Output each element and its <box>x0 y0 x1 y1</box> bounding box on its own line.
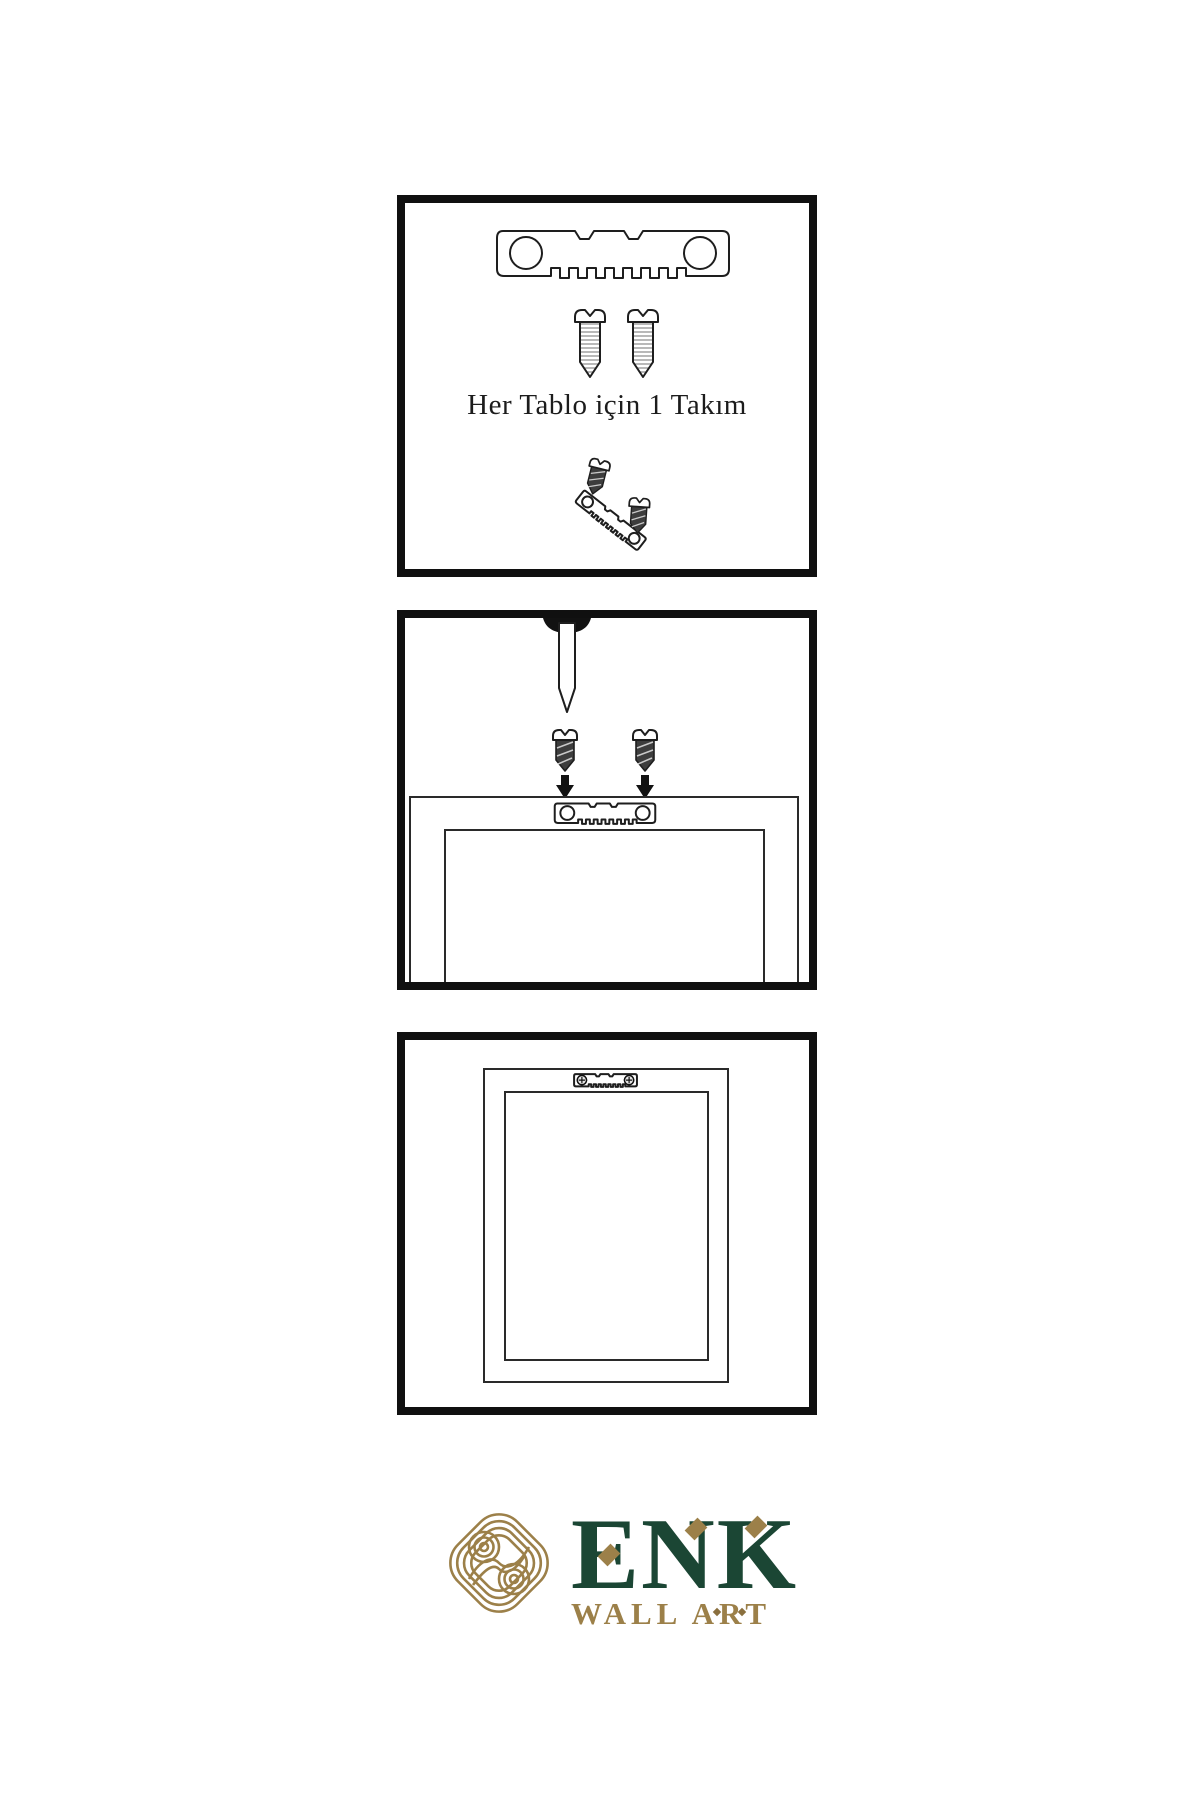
down-arrow-icon <box>556 775 574 799</box>
mounting-diagram <box>405 618 809 982</box>
brand-name: ENK <box>571 1504 798 1606</box>
panel-mount-hardware <box>397 610 817 990</box>
down-arrow-icon <box>636 775 654 799</box>
screw-icon <box>628 310 658 377</box>
frame-back-inner <box>505 1092 708 1360</box>
brand-logo: ENK WALL ART <box>437 1490 798 1632</box>
screw-icon <box>575 310 605 377</box>
screw-hanger-assembly-icon <box>575 458 650 551</box>
hardware-kit-diagram <box>405 203 809 569</box>
screw-icon <box>583 458 611 497</box>
panel-caption: Her Tablo için 1 Takım <box>405 389 809 422</box>
brand-tagline: WALL ART <box>571 1596 798 1632</box>
screw-icon <box>553 730 577 771</box>
nail-icon <box>559 623 575 712</box>
brand-text: ENK WALL ART <box>571 1504 798 1632</box>
hung-frame-diagram <box>405 1040 809 1407</box>
panel-hang-frame <box>397 1032 817 1415</box>
instruction-sheet: Her Tablo için 1 Takım <box>0 0 1200 1800</box>
sawtooth-hanger-icon <box>497 231 729 278</box>
frame-back-inner <box>445 830 764 982</box>
brand-knot-icon <box>437 1497 561 1631</box>
screw-icon <box>633 730 657 771</box>
panel-hardware-kit: Her Tablo için 1 Takım <box>397 195 817 577</box>
sawtooth-hanger-icon <box>555 803 656 823</box>
